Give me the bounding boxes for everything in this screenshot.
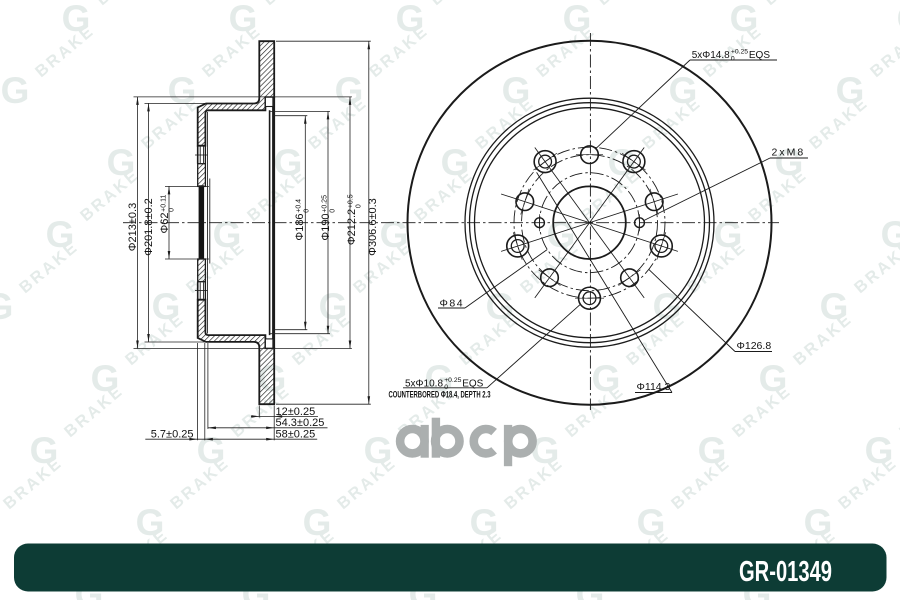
svg-text:Φ84: Φ84 (440, 298, 465, 310)
svg-text:5xΦ10.8: 5xΦ10.8 (405, 378, 443, 389)
svg-text:Φ126.8: Φ126.8 (737, 340, 772, 352)
svg-text:+0.25: +0.25 (322, 195, 329, 213)
svg-text:EQS: EQS (462, 378, 483, 389)
svg-text:Φ213±0.3: Φ213±0.3 (127, 203, 139, 251)
svg-text:+0.25: +0.25 (444, 377, 461, 384)
svg-text:Φ186: Φ186 (294, 213, 306, 240)
svg-text:Φ212.2: Φ212.2 (346, 209, 358, 245)
svg-text:EQS: EQS (749, 50, 770, 61)
svg-text:0: 0 (356, 204, 363, 208)
svg-text:0: 0 (330, 209, 337, 213)
svg-text:0: 0 (169, 208, 176, 212)
svg-text:Φ201.8±0.2: Φ201.8±0.2 (143, 198, 155, 256)
svg-text:COUNTERBORED Φ18.4, DEPTH 2.3: COUNTERBORED Φ18.4, DEPTH 2.3 (389, 389, 491, 400)
svg-text:G: G (897, 0, 900, 39)
svg-text:+0.11: +0.11 (161, 195, 168, 212)
svg-text:+0.25: +0.25 (731, 49, 748, 56)
svg-text:+0.5: +0.5 (348, 194, 355, 208)
svg-text:54.3±0.25: 54.3±0.25 (276, 417, 325, 429)
svg-text:GR-01349: GR-01349 (739, 556, 832, 588)
svg-text:G: G (0, 286, 13, 327)
svg-text:Φ114.3: Φ114.3 (637, 381, 671, 393)
svg-text:12±0.25: 12±0.25 (276, 406, 316, 418)
svg-text:Φ306.6±0.3: Φ306.6±0.3 (367, 198, 379, 256)
svg-text:+0.4: +0.4 (296, 199, 303, 213)
svg-text:0: 0 (304, 209, 311, 213)
svg-text:0: 0 (731, 56, 735, 63)
svg-text:Φ62: Φ62 (159, 212, 171, 233)
svg-text:58±0.25: 58±0.25 (276, 429, 316, 441)
svg-text:2xM8: 2xM8 (772, 147, 806, 159)
svg-text:5xΦ14.8: 5xΦ14.8 (692, 50, 730, 61)
svg-text:Φ190: Φ190 (320, 213, 332, 240)
svg-text:G: G (1, 70, 30, 111)
svg-text:5.7±0.25: 5.7±0.25 (151, 429, 194, 441)
